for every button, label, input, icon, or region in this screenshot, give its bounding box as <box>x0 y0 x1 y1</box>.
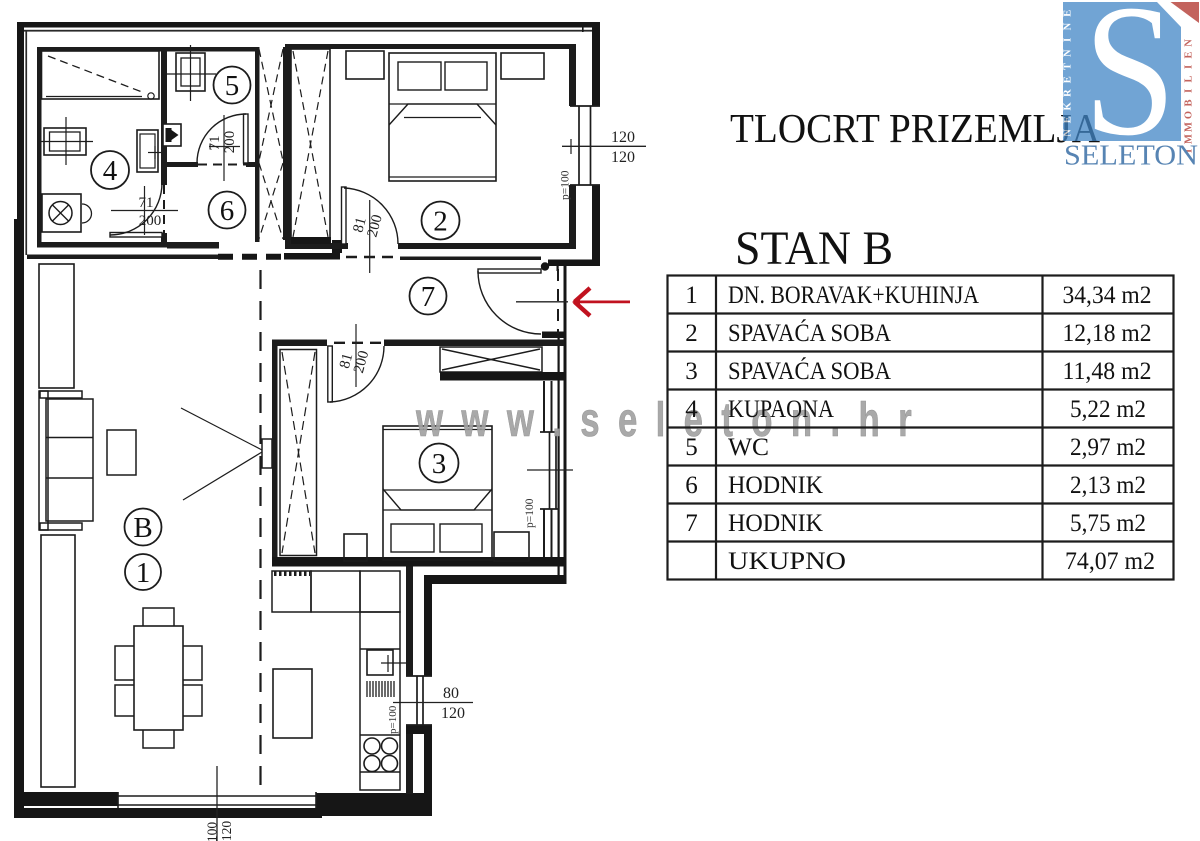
svg-text:p=100: p=100 <box>387 705 399 734</box>
svg-text:74,07 m2: 74,07 m2 <box>1065 548 1155 575</box>
svg-text:120: 120 <box>611 149 635 166</box>
svg-text:I: I <box>1184 65 1195 69</box>
svg-text:HODNIK: HODNIK <box>728 510 823 537</box>
svg-text:TLOCRT PRIZEMLJA: TLOCRT PRIZEMLJA <box>730 105 1100 151</box>
svg-text:6: 6 <box>220 195 235 227</box>
svg-text:2: 2 <box>685 320 698 347</box>
svg-text:200: 200 <box>222 131 238 154</box>
svg-text:2: 2 <box>433 206 448 238</box>
svg-text:2,97 m2: 2,97 m2 <box>1070 434 1146 461</box>
svg-text:6: 6 <box>685 472 698 499</box>
svg-text:5,75 m2: 5,75 m2 <box>1070 510 1146 537</box>
svg-text:2,13 m2: 2,13 m2 <box>1070 472 1146 499</box>
svg-text:KUPAONA: KUPAONA <box>728 396 834 423</box>
svg-text:UKUPNO: UKUPNO <box>728 548 846 575</box>
svg-text:E: E <box>1063 10 1074 17</box>
svg-text:N: N <box>1063 129 1074 137</box>
svg-text:E: E <box>1184 51 1195 58</box>
svg-text:11,48 m2: 11,48 m2 <box>1063 358 1152 385</box>
svg-text:71: 71 <box>207 136 223 151</box>
svg-text:DN. BORAVAK+KUHINJA: DN. BORAVAK+KUHINJA <box>728 282 979 309</box>
svg-text:M: M <box>1184 122 1195 132</box>
svg-text:p=100: p=100 <box>560 170 572 200</box>
svg-text:71: 71 <box>139 195 154 211</box>
svg-text:I: I <box>1184 89 1195 93</box>
svg-text:SPAVAĆA SOBA: SPAVAĆA SOBA <box>728 357 891 385</box>
svg-text:7: 7 <box>421 281 436 313</box>
svg-text:7: 7 <box>685 510 698 537</box>
svg-text:5: 5 <box>225 70 240 102</box>
svg-text:120: 120 <box>611 129 635 146</box>
svg-text:R: R <box>1063 89 1074 97</box>
svg-text:B: B <box>1184 99 1195 106</box>
svg-text:1: 1 <box>136 557 151 589</box>
svg-text:3: 3 <box>432 448 447 480</box>
svg-text:12,18 m2: 12,18 m2 <box>1063 320 1152 347</box>
svg-text:N: N <box>1063 22 1074 30</box>
svg-text:4: 4 <box>103 155 118 187</box>
svg-text:WC: WC <box>728 434 769 461</box>
svg-text:120: 120 <box>441 705 465 722</box>
svg-text:5,22 m2: 5,22 m2 <box>1070 396 1146 423</box>
svg-text:34,34 m2: 34,34 m2 <box>1063 282 1152 309</box>
svg-text:SELETON: SELETON <box>1064 140 1198 172</box>
svg-text:1: 1 <box>685 282 698 309</box>
svg-text:T: T <box>1063 63 1074 70</box>
svg-text:E: E <box>1063 116 1074 123</box>
svg-text:HODNIK: HODNIK <box>728 472 823 499</box>
svg-text:100: 100 <box>205 822 220 841</box>
svg-text:3: 3 <box>685 358 698 385</box>
svg-text:L: L <box>1184 75 1195 82</box>
svg-text:B: B <box>133 512 152 544</box>
svg-text:200: 200 <box>139 213 162 229</box>
svg-text:I: I <box>1063 38 1074 42</box>
svg-text:80: 80 <box>443 685 459 702</box>
svg-text:p=100: p=100 <box>524 498 536 528</box>
svg-text:N: N <box>1184 39 1195 47</box>
svg-text:SPAVAĆA SOBA: SPAVAĆA SOBA <box>728 319 891 347</box>
svg-text:120: 120 <box>219 821 234 841</box>
svg-text:O: O <box>1184 111 1195 119</box>
svg-text:5: 5 <box>685 434 698 461</box>
svg-text:4: 4 <box>685 396 698 423</box>
svg-text:K: K <box>1063 101 1074 110</box>
svg-text:E: E <box>1063 76 1074 83</box>
svg-text:N: N <box>1063 49 1074 57</box>
svg-text:w w w . s e l e t o n . h r: w w w . s e l e t o n . h r <box>415 394 916 447</box>
svg-text:STAN B: STAN B <box>735 222 893 275</box>
